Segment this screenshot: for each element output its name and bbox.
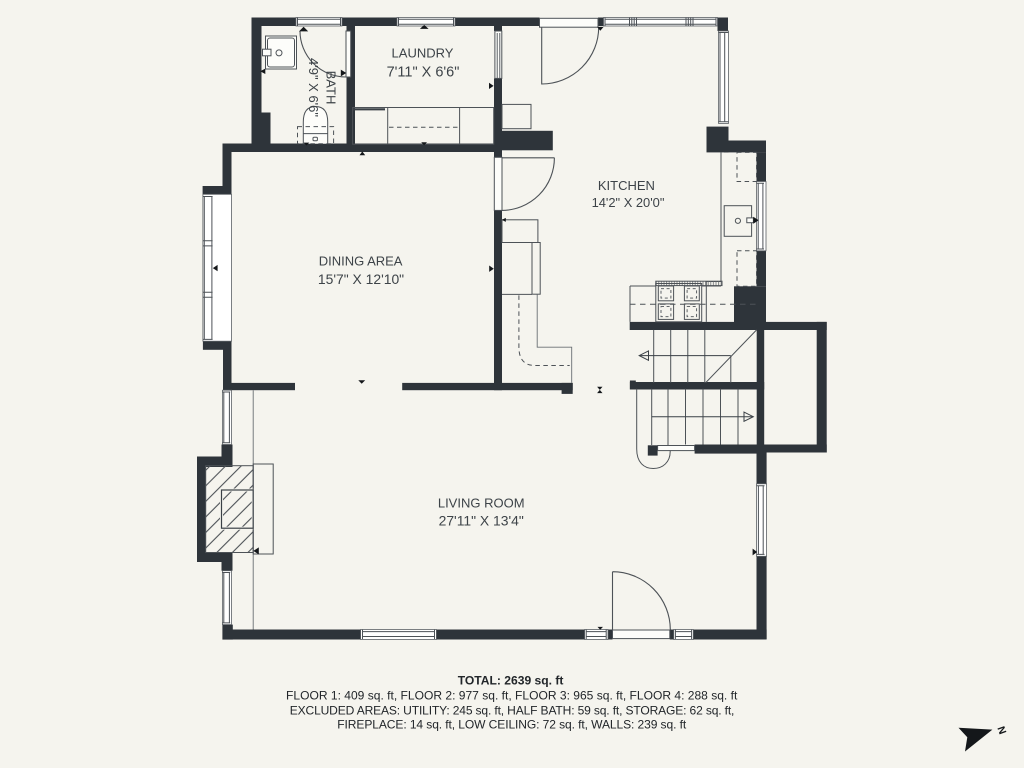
svg-text:BATH: BATH bbox=[324, 71, 339, 105]
svg-text:KITCHEN: KITCHEN bbox=[598, 178, 655, 193]
svg-text:14'2" X 20'0": 14'2" X 20'0" bbox=[592, 195, 665, 210]
svg-text:EXCLUDED AREAS: UTILITY: 245 s: EXCLUDED AREAS: UTILITY: 245 sq. ft, HAL… bbox=[290, 703, 734, 717]
svg-text:LAUNDRY: LAUNDRY bbox=[392, 46, 454, 61]
svg-text:7'11" X 6'6": 7'11" X 6'6" bbox=[387, 64, 460, 80]
svg-text:TOTAL: 2639 sq. ft: TOTAL: 2639 sq. ft bbox=[458, 673, 564, 687]
svg-text:FIREPLACE: 14 sq. ft, LOW CEIL: FIREPLACE: 14 sq. ft, LOW CEILING: 72 sq… bbox=[337, 718, 687, 732]
svg-text:FLOOR 1: 409 sq. ft, FLOOR 2:: FLOOR 1: 409 sq. ft, FLOOR 2: 977 sq. ft… bbox=[286, 689, 738, 703]
svg-text:LIVING ROOM: LIVING ROOM bbox=[438, 496, 525, 511]
svg-text:DINING AREA: DINING AREA bbox=[319, 254, 403, 269]
svg-text:27'11" X 13'4": 27'11" X 13'4" bbox=[439, 513, 524, 529]
svg-text:4'9" X 6'6": 4'9" X 6'6" bbox=[306, 58, 321, 117]
svg-text:15'7" X 12'10": 15'7" X 12'10" bbox=[318, 271, 404, 287]
